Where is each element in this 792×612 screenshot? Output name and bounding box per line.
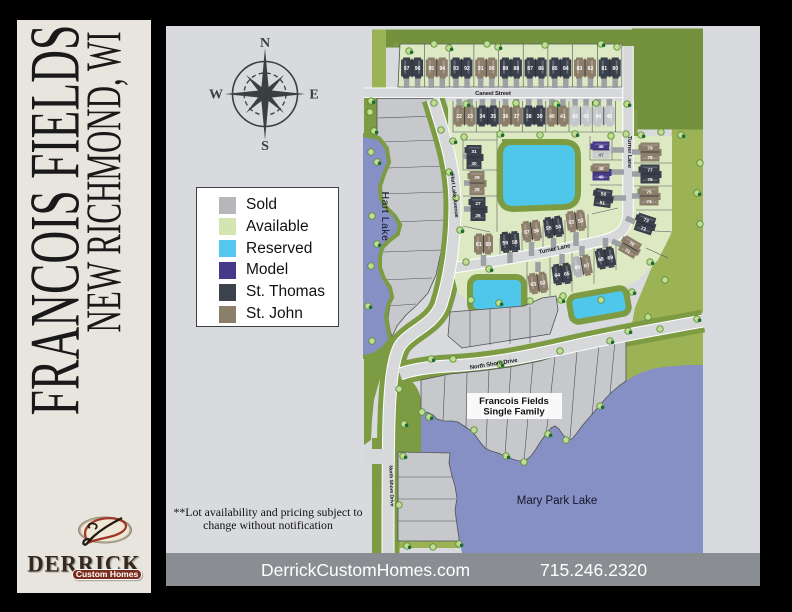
svg-text:44: 44 xyxy=(595,114,601,120)
svg-text:75: 75 xyxy=(646,189,652,195)
svg-text:30: 30 xyxy=(471,161,477,167)
svg-text:65: 65 xyxy=(564,271,571,278)
svg-text:53: 53 xyxy=(568,219,575,226)
svg-text:Mary Park Lake: Mary Park Lake xyxy=(517,495,598,507)
svg-text:48: 48 xyxy=(598,166,604,172)
svg-text:42: 42 xyxy=(572,114,578,120)
svg-text:40: 40 xyxy=(549,114,555,120)
svg-text:85: 85 xyxy=(552,66,558,72)
svg-text:57: 57 xyxy=(524,229,531,236)
svg-text:97: 97 xyxy=(404,66,410,72)
svg-text:79: 79 xyxy=(647,145,653,151)
svg-text:W: W xyxy=(209,87,223,102)
svg-text:45: 45 xyxy=(606,114,612,120)
svg-text:S: S xyxy=(261,139,269,150)
svg-text:89: 89 xyxy=(503,66,509,72)
svg-text:69: 69 xyxy=(607,255,614,262)
svg-text:82: 82 xyxy=(588,66,594,72)
svg-text:74: 74 xyxy=(646,199,652,205)
svg-text:61: 61 xyxy=(476,242,482,248)
svg-text:52: 52 xyxy=(578,218,585,225)
svg-text:Francois Fields: Francois Fields xyxy=(479,396,549,407)
svg-text:96: 96 xyxy=(415,66,421,72)
svg-text:41: 41 xyxy=(560,114,566,120)
svg-text:93: 93 xyxy=(453,66,459,72)
svg-text:Caneel Street: Caneel Street xyxy=(475,91,511,97)
svg-text:36: 36 xyxy=(503,114,509,120)
svg-text:35: 35 xyxy=(490,114,496,120)
svg-text:56: 56 xyxy=(533,228,540,235)
svg-text:23: 23 xyxy=(467,114,473,120)
svg-text:63: 63 xyxy=(530,281,537,288)
svg-text:N: N xyxy=(260,38,270,51)
svg-text:E: E xyxy=(309,87,318,102)
svg-text:43: 43 xyxy=(583,114,589,120)
svg-text:Single Family: Single Family xyxy=(483,407,545,418)
svg-text:94: 94 xyxy=(439,66,445,72)
svg-text:59: 59 xyxy=(502,240,508,246)
svg-text:55: 55 xyxy=(546,225,553,232)
svg-text:92: 92 xyxy=(464,66,470,72)
svg-text:26: 26 xyxy=(475,213,481,219)
svg-text:47: 47 xyxy=(598,152,604,158)
svg-text:68: 68 xyxy=(598,256,605,263)
svg-text:66: 66 xyxy=(574,264,581,271)
svg-text:67: 67 xyxy=(584,263,591,270)
svg-text:95: 95 xyxy=(428,66,434,72)
svg-text:64: 64 xyxy=(554,272,561,279)
svg-text:76: 76 xyxy=(647,177,653,183)
svg-text:27: 27 xyxy=(475,201,481,207)
svg-text:39: 39 xyxy=(537,114,543,120)
svg-text:38: 38 xyxy=(526,114,532,120)
svg-text:Turner Lane: Turner Lane xyxy=(626,136,632,169)
svg-text:60: 60 xyxy=(485,242,491,248)
svg-text:29: 29 xyxy=(474,175,480,181)
svg-text:22: 22 xyxy=(456,114,462,120)
svg-text:84: 84 xyxy=(563,66,569,72)
svg-text:46: 46 xyxy=(598,144,604,150)
svg-text:54: 54 xyxy=(555,224,562,231)
svg-text:77: 77 xyxy=(647,167,653,173)
svg-text:80: 80 xyxy=(612,66,618,72)
svg-text:34: 34 xyxy=(479,114,485,120)
svg-text:31: 31 xyxy=(471,149,477,155)
svg-text:87: 87 xyxy=(527,66,533,72)
svg-text:86: 86 xyxy=(538,66,544,72)
svg-text:37: 37 xyxy=(514,114,520,120)
svg-text:58: 58 xyxy=(512,240,518,246)
svg-text:78: 78 xyxy=(647,155,653,161)
svg-text:Hart Lake: Hart Lake xyxy=(379,191,391,241)
svg-text:83: 83 xyxy=(577,66,583,72)
svg-text:62: 62 xyxy=(540,280,547,287)
svg-text:88: 88 xyxy=(514,66,520,72)
svg-text:28: 28 xyxy=(474,187,480,193)
svg-text:90: 90 xyxy=(489,66,495,72)
svg-text:81: 81 xyxy=(601,66,607,72)
svg-text:91: 91 xyxy=(478,66,484,72)
svg-text:49: 49 xyxy=(598,174,604,180)
